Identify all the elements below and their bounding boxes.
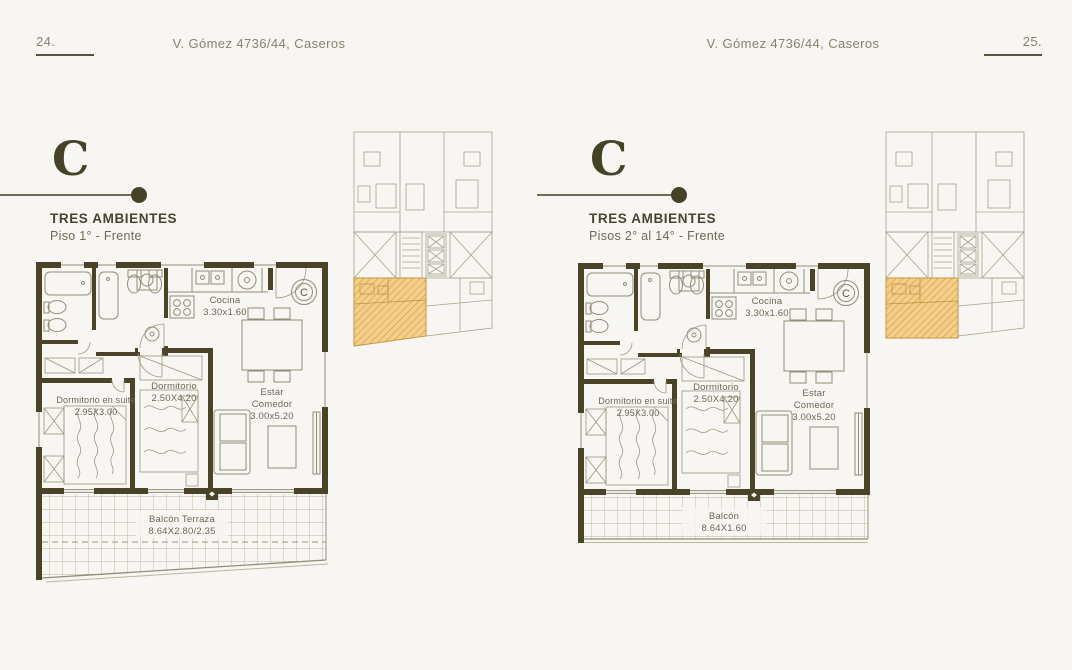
balcony-label-right: Balcón bbox=[709, 511, 739, 522]
floor-plan-left: Balcón Terraza 8.64X2.80/2.35 bbox=[36, 262, 328, 582]
balcony-terrace-left: Balcón Terraza 8.64X2.80/2.35 bbox=[36, 488, 328, 582]
brochure-spread: 24. V. Gómez 4736/44, Caseros V. Gómez 4… bbox=[0, 0, 1072, 670]
floor-plan-artwork: C bbox=[0, 0, 1072, 670]
balcony-side-wall bbox=[578, 489, 584, 543]
highlighted-unit-right bbox=[886, 278, 958, 338]
balcony-label-left: Balcón Terraza bbox=[149, 514, 216, 525]
balcony-dims-right: 8.64X1.60 bbox=[701, 523, 746, 534]
floor-plan-right: Balcón 8.64X1.60 bbox=[578, 263, 870, 543]
balcony-dims-left: 8.64X2.80/2.35 bbox=[148, 526, 215, 537]
key-plan-right bbox=[886, 132, 1024, 338]
balcony-side-wall bbox=[36, 488, 42, 580]
balcony-right: Balcón 8.64X1.60 bbox=[578, 489, 868, 543]
highlighted-unit-left bbox=[354, 278, 426, 346]
key-plan-left bbox=[354, 132, 492, 346]
